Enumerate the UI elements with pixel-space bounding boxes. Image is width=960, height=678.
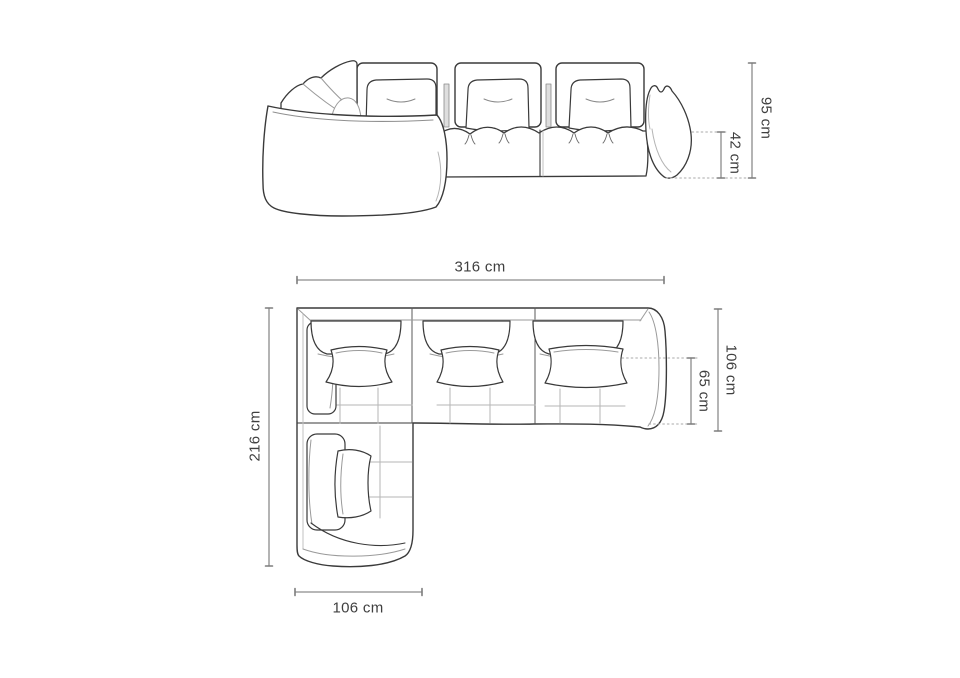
dimension-label-total-width: 316 cm xyxy=(455,259,506,276)
dimension-label-chaise-length: 216 cm xyxy=(247,411,264,462)
top-seat-cushions xyxy=(326,346,627,388)
top-view-drawing xyxy=(0,0,960,678)
dimension-label-chaise-width: 106 cm xyxy=(333,600,384,617)
dimension-label-seat-height: 42 cm xyxy=(727,132,744,174)
dimension-label-total-height: 95 cm xyxy=(758,97,775,139)
dimension-label-seat-depth: 65 cm xyxy=(696,370,713,412)
dimension-label-total-depth: 106 cm xyxy=(723,345,740,396)
sofa-dimension-diagram: 95 cm 42 cm 316 cm 106 cm 65 cm 216 cm 1… xyxy=(0,0,960,678)
